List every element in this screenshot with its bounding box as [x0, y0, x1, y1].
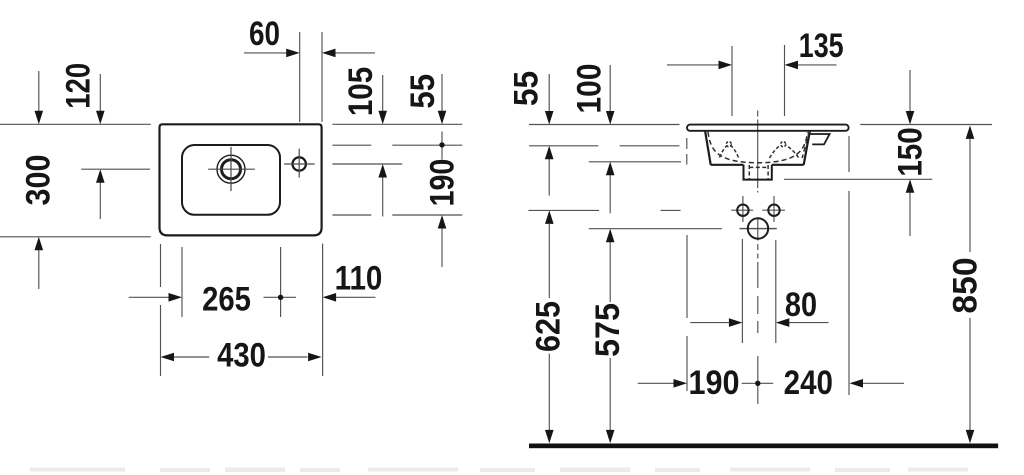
svg-text:105: 105 — [341, 67, 379, 116]
svg-text:850: 850 — [946, 257, 984, 313]
svg-text:80: 80 — [785, 285, 817, 324]
svg-text:100: 100 — [570, 64, 608, 114]
svg-text:575: 575 — [589, 303, 627, 357]
svg-text:240: 240 — [784, 363, 833, 401]
svg-text:55: 55 — [403, 74, 442, 109]
svg-text:625: 625 — [529, 301, 567, 352]
svg-text:300: 300 — [19, 154, 57, 205]
svg-text:265: 265 — [202, 279, 251, 318]
svg-text:190: 190 — [423, 159, 461, 207]
svg-text:120: 120 — [59, 63, 97, 109]
svg-text:55: 55 — [507, 71, 545, 106]
svg-text:135: 135 — [799, 27, 844, 65]
svg-text:190: 190 — [688, 364, 739, 402]
svg-text:430: 430 — [217, 335, 266, 374]
svg-text:110: 110 — [335, 258, 383, 296]
svg-text:150: 150 — [891, 127, 929, 176]
svg-text:60: 60 — [249, 14, 280, 52]
